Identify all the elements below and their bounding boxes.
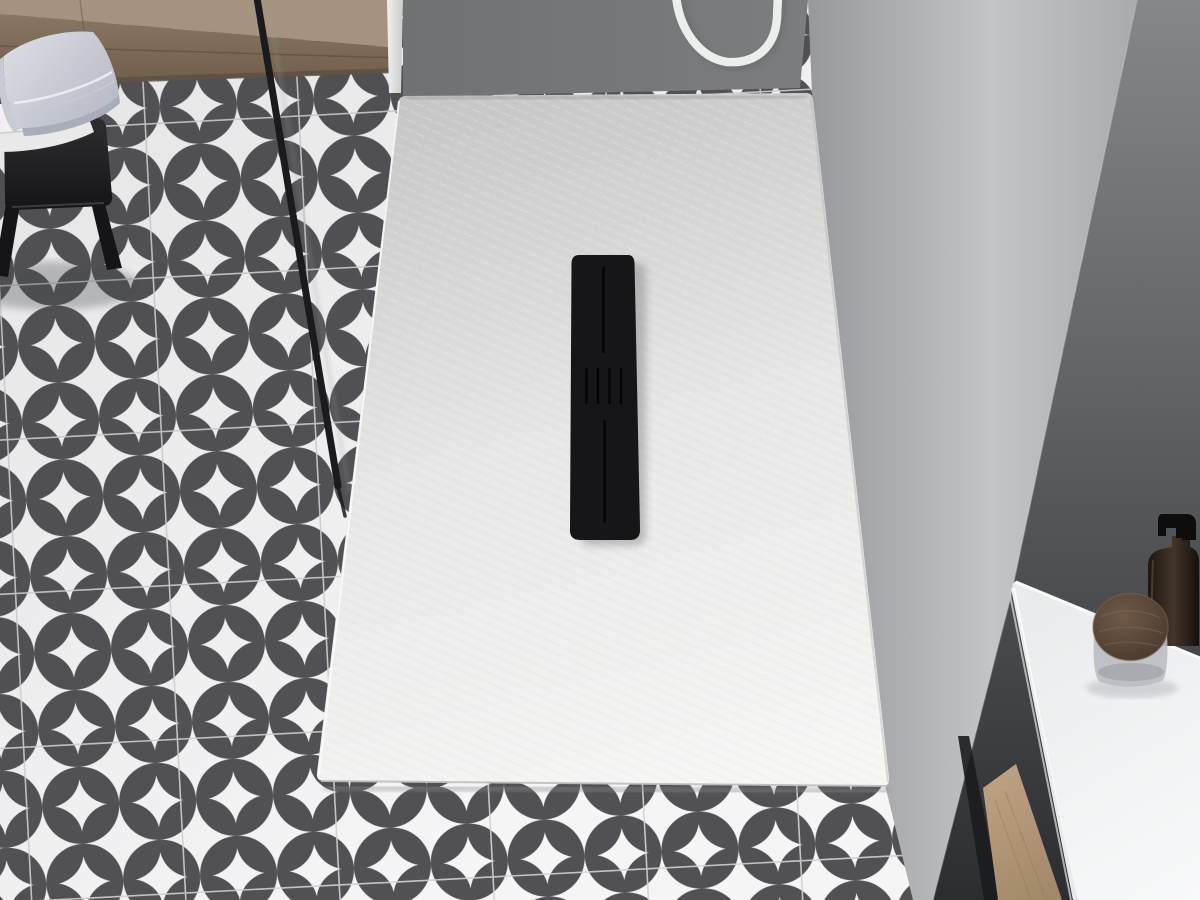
back-wall (403, 0, 808, 97)
bathroom-render (0, 0, 1200, 900)
bathroom-photo (0, 0, 1200, 900)
wall-trim (387, 0, 403, 93)
back-wall-surface (403, 0, 808, 97)
jar-glass-inner (1098, 663, 1164, 681)
linear-drain (570, 255, 646, 546)
